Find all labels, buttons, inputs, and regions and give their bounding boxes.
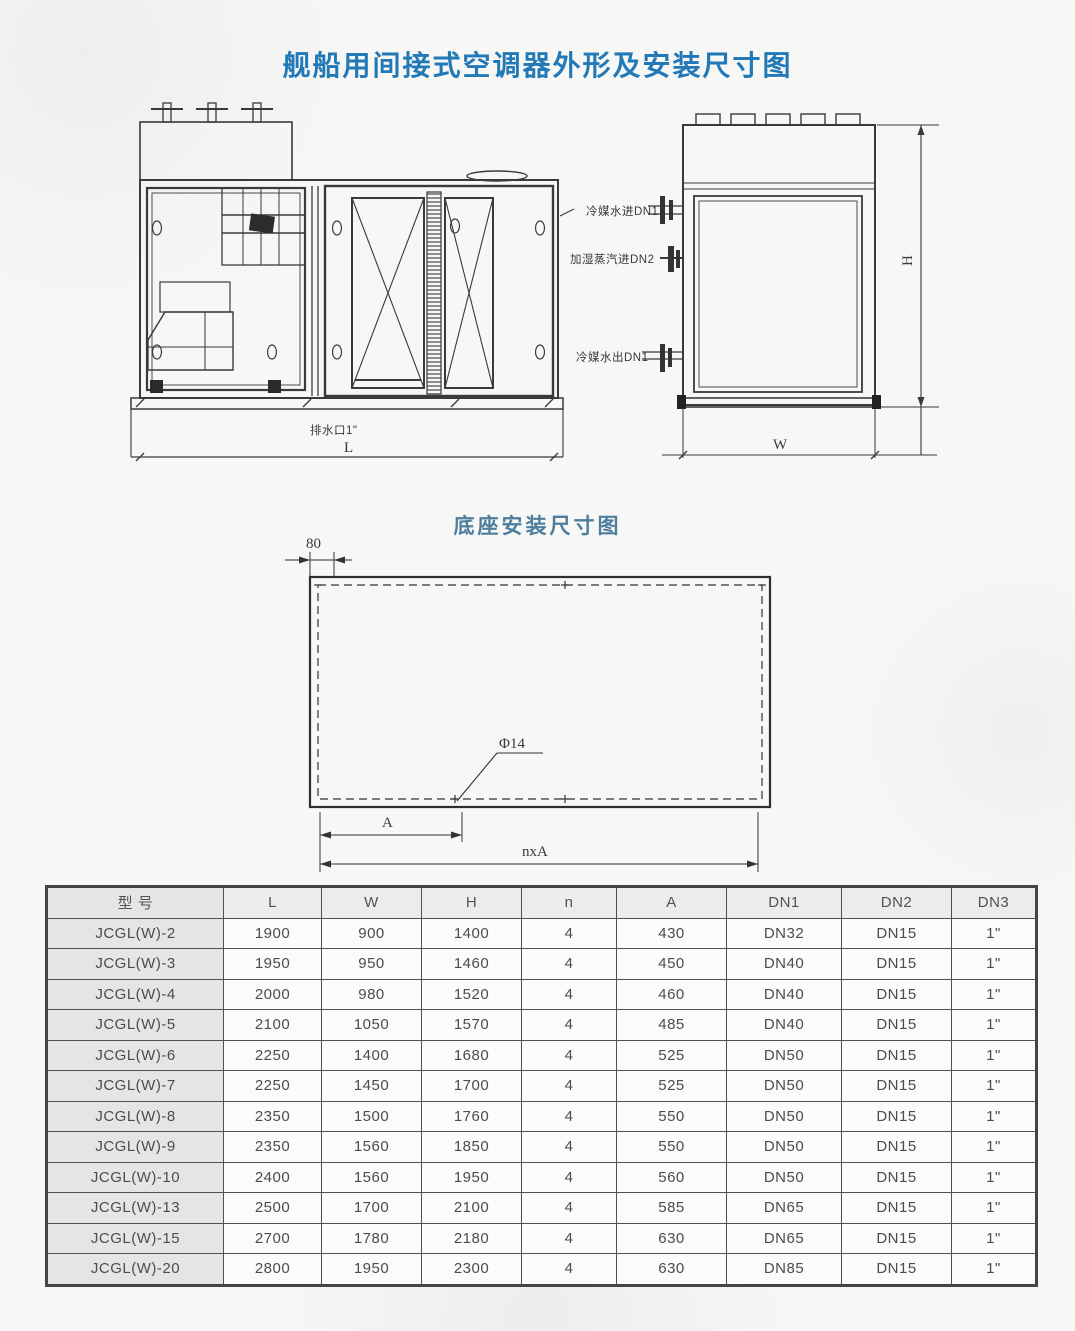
value-cell: 1570 — [422, 1010, 522, 1041]
value-cell: 485 — [617, 1010, 727, 1041]
value-cell: 1760 — [422, 1101, 522, 1132]
pitch-dim-label: A — [382, 815, 393, 831]
value-cell: 1950 — [422, 1162, 522, 1193]
value-cell: 1" — [952, 1132, 1037, 1163]
bolt-hole-marks — [314, 581, 766, 803]
table-row: JCGL(W)-132500170021004585DN65DN151" — [47, 1193, 1037, 1224]
model-cell: JCGL(W)-7 — [47, 1071, 224, 1102]
value-cell: 2250 — [224, 1071, 322, 1102]
drain-port-label: 排水口1" — [310, 423, 357, 437]
value-cell: DN50 — [727, 1040, 842, 1071]
value-cell: 1780 — [322, 1223, 422, 1254]
value-cell: DN15 — [842, 1101, 952, 1132]
value-cell: 900 — [322, 918, 422, 949]
value-cell: 1" — [952, 1193, 1037, 1224]
value-cell: 1700 — [322, 1193, 422, 1224]
table-header-row: 型 号 L W H n A DN1 DN2 DN3 — [47, 887, 1037, 919]
model-cell: JCGL(W)-10 — [47, 1162, 224, 1193]
catalog-page: 舰船用间接式空调器外形及安装尺寸图 — [0, 0, 1075, 1331]
hole-diameter-label: Φ14 — [499, 736, 525, 752]
value-cell: 1050 — [322, 1010, 422, 1041]
value-cell: 1" — [952, 1010, 1037, 1041]
total-span-label: nxA — [522, 844, 548, 860]
model-cell: JCGL(W)-8 — [47, 1101, 224, 1132]
technical-drawing: 排水口1" L 冷媒水进DN1 加湿蒸汽进DN2 冷媒水出DN1 — [0, 0, 1075, 885]
value-cell: 2500 — [224, 1193, 322, 1224]
table-row: JCGL(W)-152700178021804630DN65DN151" — [47, 1223, 1037, 1254]
value-cell: DN50 — [727, 1132, 842, 1163]
value-cell: 980 — [322, 979, 422, 1010]
value-cell: 1" — [952, 1071, 1037, 1102]
value-cell: DN15 — [842, 1132, 952, 1163]
header-DN2: DN2 — [842, 887, 952, 919]
value-cell: 1680 — [422, 1040, 522, 1071]
value-cell: 2350 — [224, 1101, 322, 1132]
base-drawing-title: 底座安装尺寸图 — [0, 510, 1075, 540]
header-model: 型 号 — [47, 887, 224, 919]
chilled-water-outlet-label: 冷媒水出DN1 — [576, 350, 649, 364]
top-lugs — [696, 114, 860, 125]
height-dimension — [877, 125, 939, 455]
value-cell: 4 — [522, 918, 617, 949]
value-cell: 4 — [522, 1010, 617, 1041]
model-cell: JCGL(W)-13 — [47, 1193, 224, 1224]
value-cell: 450 — [617, 949, 727, 980]
model-cell: JCGL(W)-2 — [47, 918, 224, 949]
spec-table: 型 号 L W H n A DN1 DN2 DN3 JCGL(W)-219009… — [45, 885, 1038, 1287]
value-cell: DN65 — [727, 1223, 842, 1254]
value-cell: DN15 — [842, 1162, 952, 1193]
table-row: JCGL(W)-92350156018504550DN50DN151" — [47, 1132, 1037, 1163]
value-cell: 950 — [322, 949, 422, 980]
pipe-connection-labels: 冷媒水进DN1 加湿蒸汽进DN2 冷媒水出DN1 — [560, 196, 683, 372]
table-row: JCGL(W)-52100105015704485DN40DN151" — [47, 1010, 1037, 1041]
header-W: W — [322, 887, 422, 919]
value-cell: 1450 — [322, 1071, 422, 1102]
value-cell: DN32 — [727, 918, 842, 949]
value-cell: 2180 — [422, 1223, 522, 1254]
length-dim-label: L — [344, 440, 353, 456]
value-cell: 4 — [522, 1132, 617, 1163]
value-cell: 4 — [522, 949, 617, 980]
value-cell: DN15 — [842, 1254, 952, 1286]
value-cell: 4 — [522, 979, 617, 1010]
value-cell: DN65 — [727, 1193, 842, 1224]
front-view: 排水口1" L — [131, 103, 563, 461]
table-row: JCGL(W)-72250145017004525DN50DN151" — [47, 1071, 1037, 1102]
value-cell: 2000 — [224, 979, 322, 1010]
value-cell: 4 — [522, 1101, 617, 1132]
value-cell: 1400 — [422, 918, 522, 949]
value-cell: 1520 — [422, 979, 522, 1010]
table-row: JCGL(W)-102400156019504560DN50DN151" — [47, 1162, 1037, 1193]
value-cell: 1950 — [322, 1254, 422, 1286]
value-cell: DN40 — [727, 1010, 842, 1041]
model-cell: JCGL(W)-4 — [47, 979, 224, 1010]
value-cell: DN15 — [842, 1040, 952, 1071]
value-cell: 2350 — [224, 1132, 322, 1163]
header-DN1: DN1 — [727, 887, 842, 919]
value-cell: 1" — [952, 1223, 1037, 1254]
value-cell: DN40 — [727, 979, 842, 1010]
value-cell: DN15 — [842, 1071, 952, 1102]
value-cell: DN15 — [842, 979, 952, 1010]
side-view: W H — [662, 114, 939, 459]
value-cell: DN15 — [842, 1193, 952, 1224]
value-cell: 430 — [617, 918, 727, 949]
value-cell: 460 — [617, 979, 727, 1010]
table-row: JCGL(W)-82350150017604550DN50DN151" — [47, 1101, 1037, 1132]
value-cell: 4 — [522, 1162, 617, 1193]
header-H: H — [422, 887, 522, 919]
model-cell: JCGL(W)-9 — [47, 1132, 224, 1163]
value-cell: 2400 — [224, 1162, 322, 1193]
value-cell: 2100 — [422, 1193, 522, 1224]
value-cell: 550 — [617, 1132, 727, 1163]
width-dim-label: W — [773, 437, 788, 453]
value-cell: 1560 — [322, 1132, 422, 1163]
value-cell: 1" — [952, 979, 1037, 1010]
value-cell: 560 — [617, 1162, 727, 1193]
value-cell: DN50 — [727, 1071, 842, 1102]
plenum-pipe-stubs — [151, 103, 273, 122]
steam-inlet-label: 加湿蒸汽进DN2 — [570, 252, 655, 266]
foundation-rail — [131, 398, 563, 409]
value-cell: 630 — [617, 1223, 727, 1254]
value-cell: 2100 — [224, 1010, 322, 1041]
value-cell: 4 — [522, 1254, 617, 1286]
header-DN3: DN3 — [952, 887, 1037, 919]
value-cell: DN40 — [727, 949, 842, 980]
table-row: JCGL(W)-62250140016804525DN50DN151" — [47, 1040, 1037, 1071]
height-dim-label: H — [900, 255, 916, 266]
model-cell: JCGL(W)-15 — [47, 1223, 224, 1254]
value-cell: 2300 — [422, 1254, 522, 1286]
value-cell: 1460 — [422, 949, 522, 980]
value-cell: 1400 — [322, 1040, 422, 1071]
damper-actuator — [249, 213, 275, 233]
value-cell: 1" — [952, 918, 1037, 949]
flange-fitting-icon — [660, 246, 683, 272]
base-frame-drawing: 80 Φ14 — [285, 536, 770, 872]
spec-table-body: JCGL(W)-2190090014004430DN32DN151"JCGL(W… — [47, 918, 1037, 1285]
value-cell: DN15 — [842, 918, 952, 949]
value-cell: 1" — [952, 1101, 1037, 1132]
value-cell: 1" — [952, 949, 1037, 980]
coil-compartment — [325, 171, 553, 396]
value-cell: DN85 — [727, 1254, 842, 1286]
value-cell: DN15 — [842, 949, 952, 980]
table-row: JCGL(W)-202800195023004630DN85DN151" — [47, 1254, 1037, 1286]
value-cell: 4 — [522, 1193, 617, 1224]
header-L: L — [224, 887, 322, 919]
chilled-water-inlet-label: 冷媒水进DN1 — [586, 205, 659, 218]
value-cell: 630 — [617, 1254, 727, 1286]
value-cell: 1" — [952, 1162, 1037, 1193]
value-cell: 2250 — [224, 1040, 322, 1071]
value-cell: 2800 — [224, 1254, 322, 1286]
table-row: JCGL(W)-4200098015204460DN40DN151" — [47, 979, 1037, 1010]
value-cell: 525 — [617, 1071, 727, 1102]
value-cell: 4 — [522, 1040, 617, 1071]
value-cell: 1" — [952, 1040, 1037, 1071]
header-A: A — [617, 887, 727, 919]
value-cell: 1700 — [422, 1071, 522, 1102]
value-cell: DN50 — [727, 1162, 842, 1193]
fan-compartment — [147, 188, 305, 393]
table-row: JCGL(W)-2190090014004430DN32DN151" — [47, 918, 1037, 949]
header-n: n — [522, 887, 617, 919]
value-cell: 1900 — [224, 918, 322, 949]
value-cell: 4 — [522, 1223, 617, 1254]
value-cell: 550 — [617, 1101, 727, 1132]
value-cell: 1500 — [322, 1101, 422, 1132]
value-cell: 2700 — [224, 1223, 322, 1254]
model-cell: JCGL(W)-20 — [47, 1254, 224, 1286]
model-cell: JCGL(W)-6 — [47, 1040, 224, 1071]
model-cell: JCGL(W)-3 — [47, 949, 224, 980]
value-cell: 4 — [522, 1071, 617, 1102]
value-cell: 1" — [952, 1254, 1037, 1286]
value-cell: DN50 — [727, 1101, 842, 1132]
value-cell: 1950 — [224, 949, 322, 980]
value-cell: 1560 — [322, 1162, 422, 1193]
value-cell: DN15 — [842, 1010, 952, 1041]
table-row: JCGL(W)-3195095014604450DN40DN151" — [47, 949, 1037, 980]
value-cell: 525 — [617, 1040, 727, 1071]
value-cell: 585 — [617, 1193, 727, 1224]
model-cell: JCGL(W)-5 — [47, 1010, 224, 1041]
width-dimension — [662, 409, 937, 459]
value-cell: DN15 — [842, 1223, 952, 1254]
value-cell: 1850 — [422, 1132, 522, 1163]
